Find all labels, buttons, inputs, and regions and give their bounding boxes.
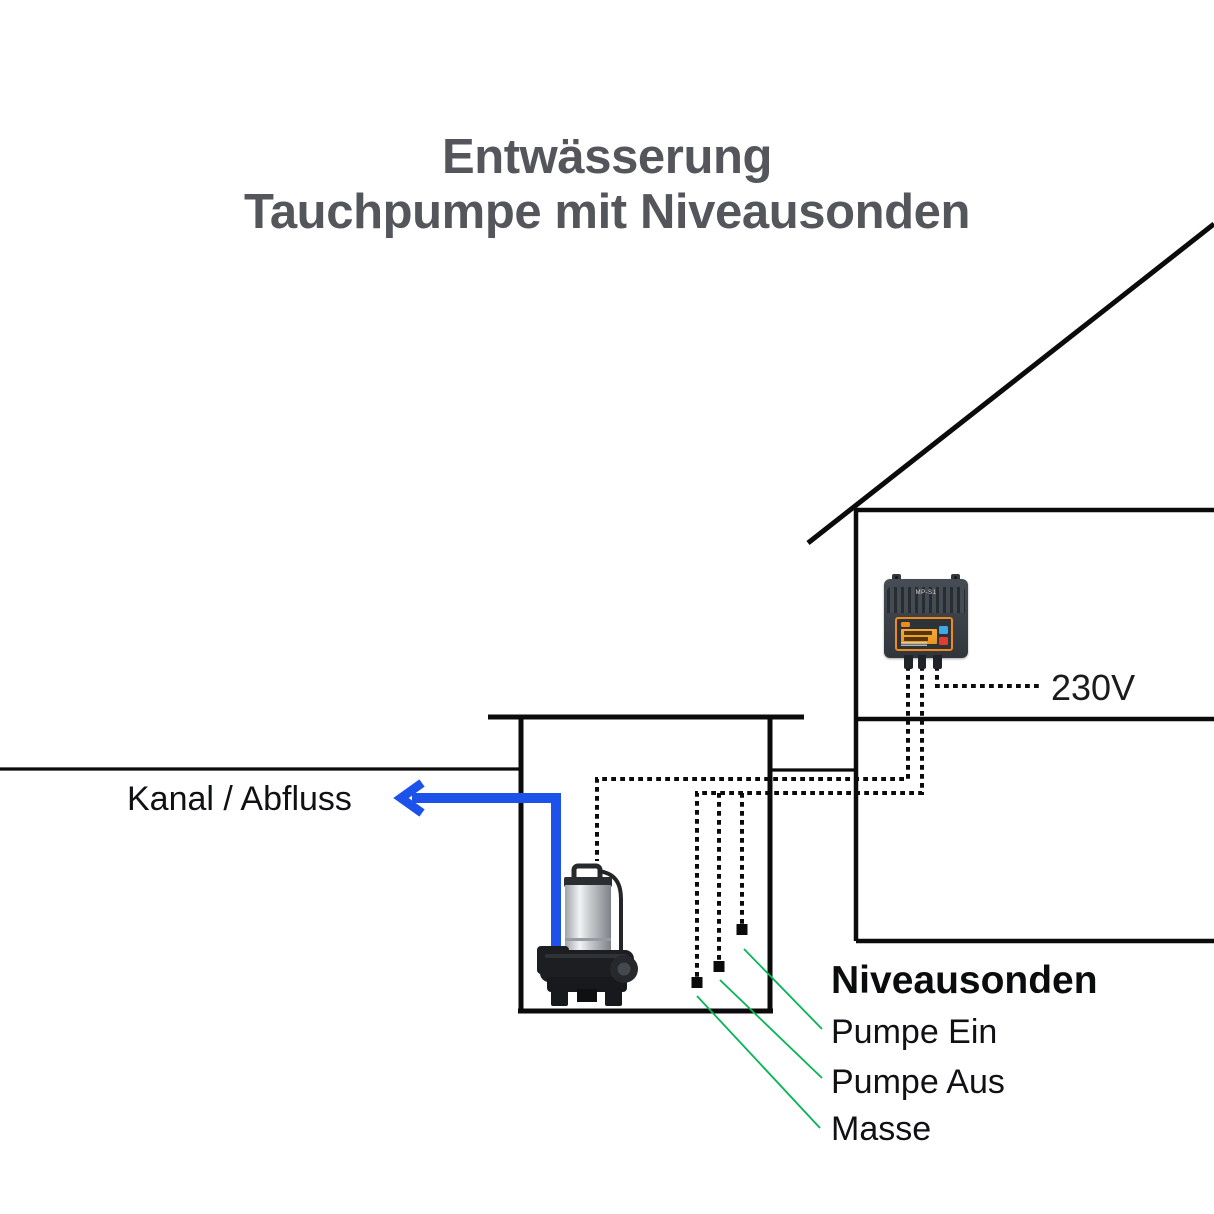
pump-controller: MP-S1 — [884, 574, 968, 658]
controller-fine-print — [901, 642, 927, 646]
cable-gland — [904, 655, 913, 669]
cable-gland — [918, 655, 926, 669]
probe-masse — [692, 977, 703, 988]
controller-set-button — [901, 622, 910, 627]
drain-pipe-run — [412, 798, 556, 958]
cable-gland — [933, 655, 942, 669]
cables — [597, 666, 1043, 977]
diagram-canvas: Entwässerung Tauchpumpe mit Niveausonden — [0, 0, 1214, 1214]
probe-cable-trunk — [697, 666, 922, 977]
label-pumpe-aus: Pumpe Aus — [831, 1063, 1005, 1102]
pit-outline — [488, 715, 804, 1013]
diagram-artwork — [0, 0, 1214, 1214]
power-supply-cable — [937, 666, 1043, 686]
probe-pumpe-ein — [737, 924, 748, 935]
house-outline — [808, 224, 1214, 941]
label-pumpe-ein: Pumpe Ein — [831, 1013, 997, 1052]
label-kanal-abfluss: Kanal / Abfluss — [127, 780, 352, 819]
drain-pipe — [401, 783, 556, 958]
pump-power-cable — [597, 666, 908, 861]
label-230v: 230V — [1051, 667, 1135, 709]
pump-body — [565, 885, 611, 955]
probe-pumpe-aus — [714, 961, 725, 972]
label-masse: Masse — [831, 1110, 931, 1149]
controller-red-button — [939, 637, 948, 645]
label-niveausonden: Niveausonden — [831, 959, 1098, 1003]
leader-pumpe-ein — [744, 949, 822, 1029]
pump-body-seam — [565, 938, 611, 941]
controller-model-label: MP-S1 — [884, 590, 968, 596]
roof-line — [808, 224, 1214, 543]
controller-body: MP-S1 — [884, 579, 968, 658]
controller-blue-button — [939, 626, 948, 634]
leader-lines — [697, 949, 822, 1128]
controller-panel — [895, 617, 953, 651]
